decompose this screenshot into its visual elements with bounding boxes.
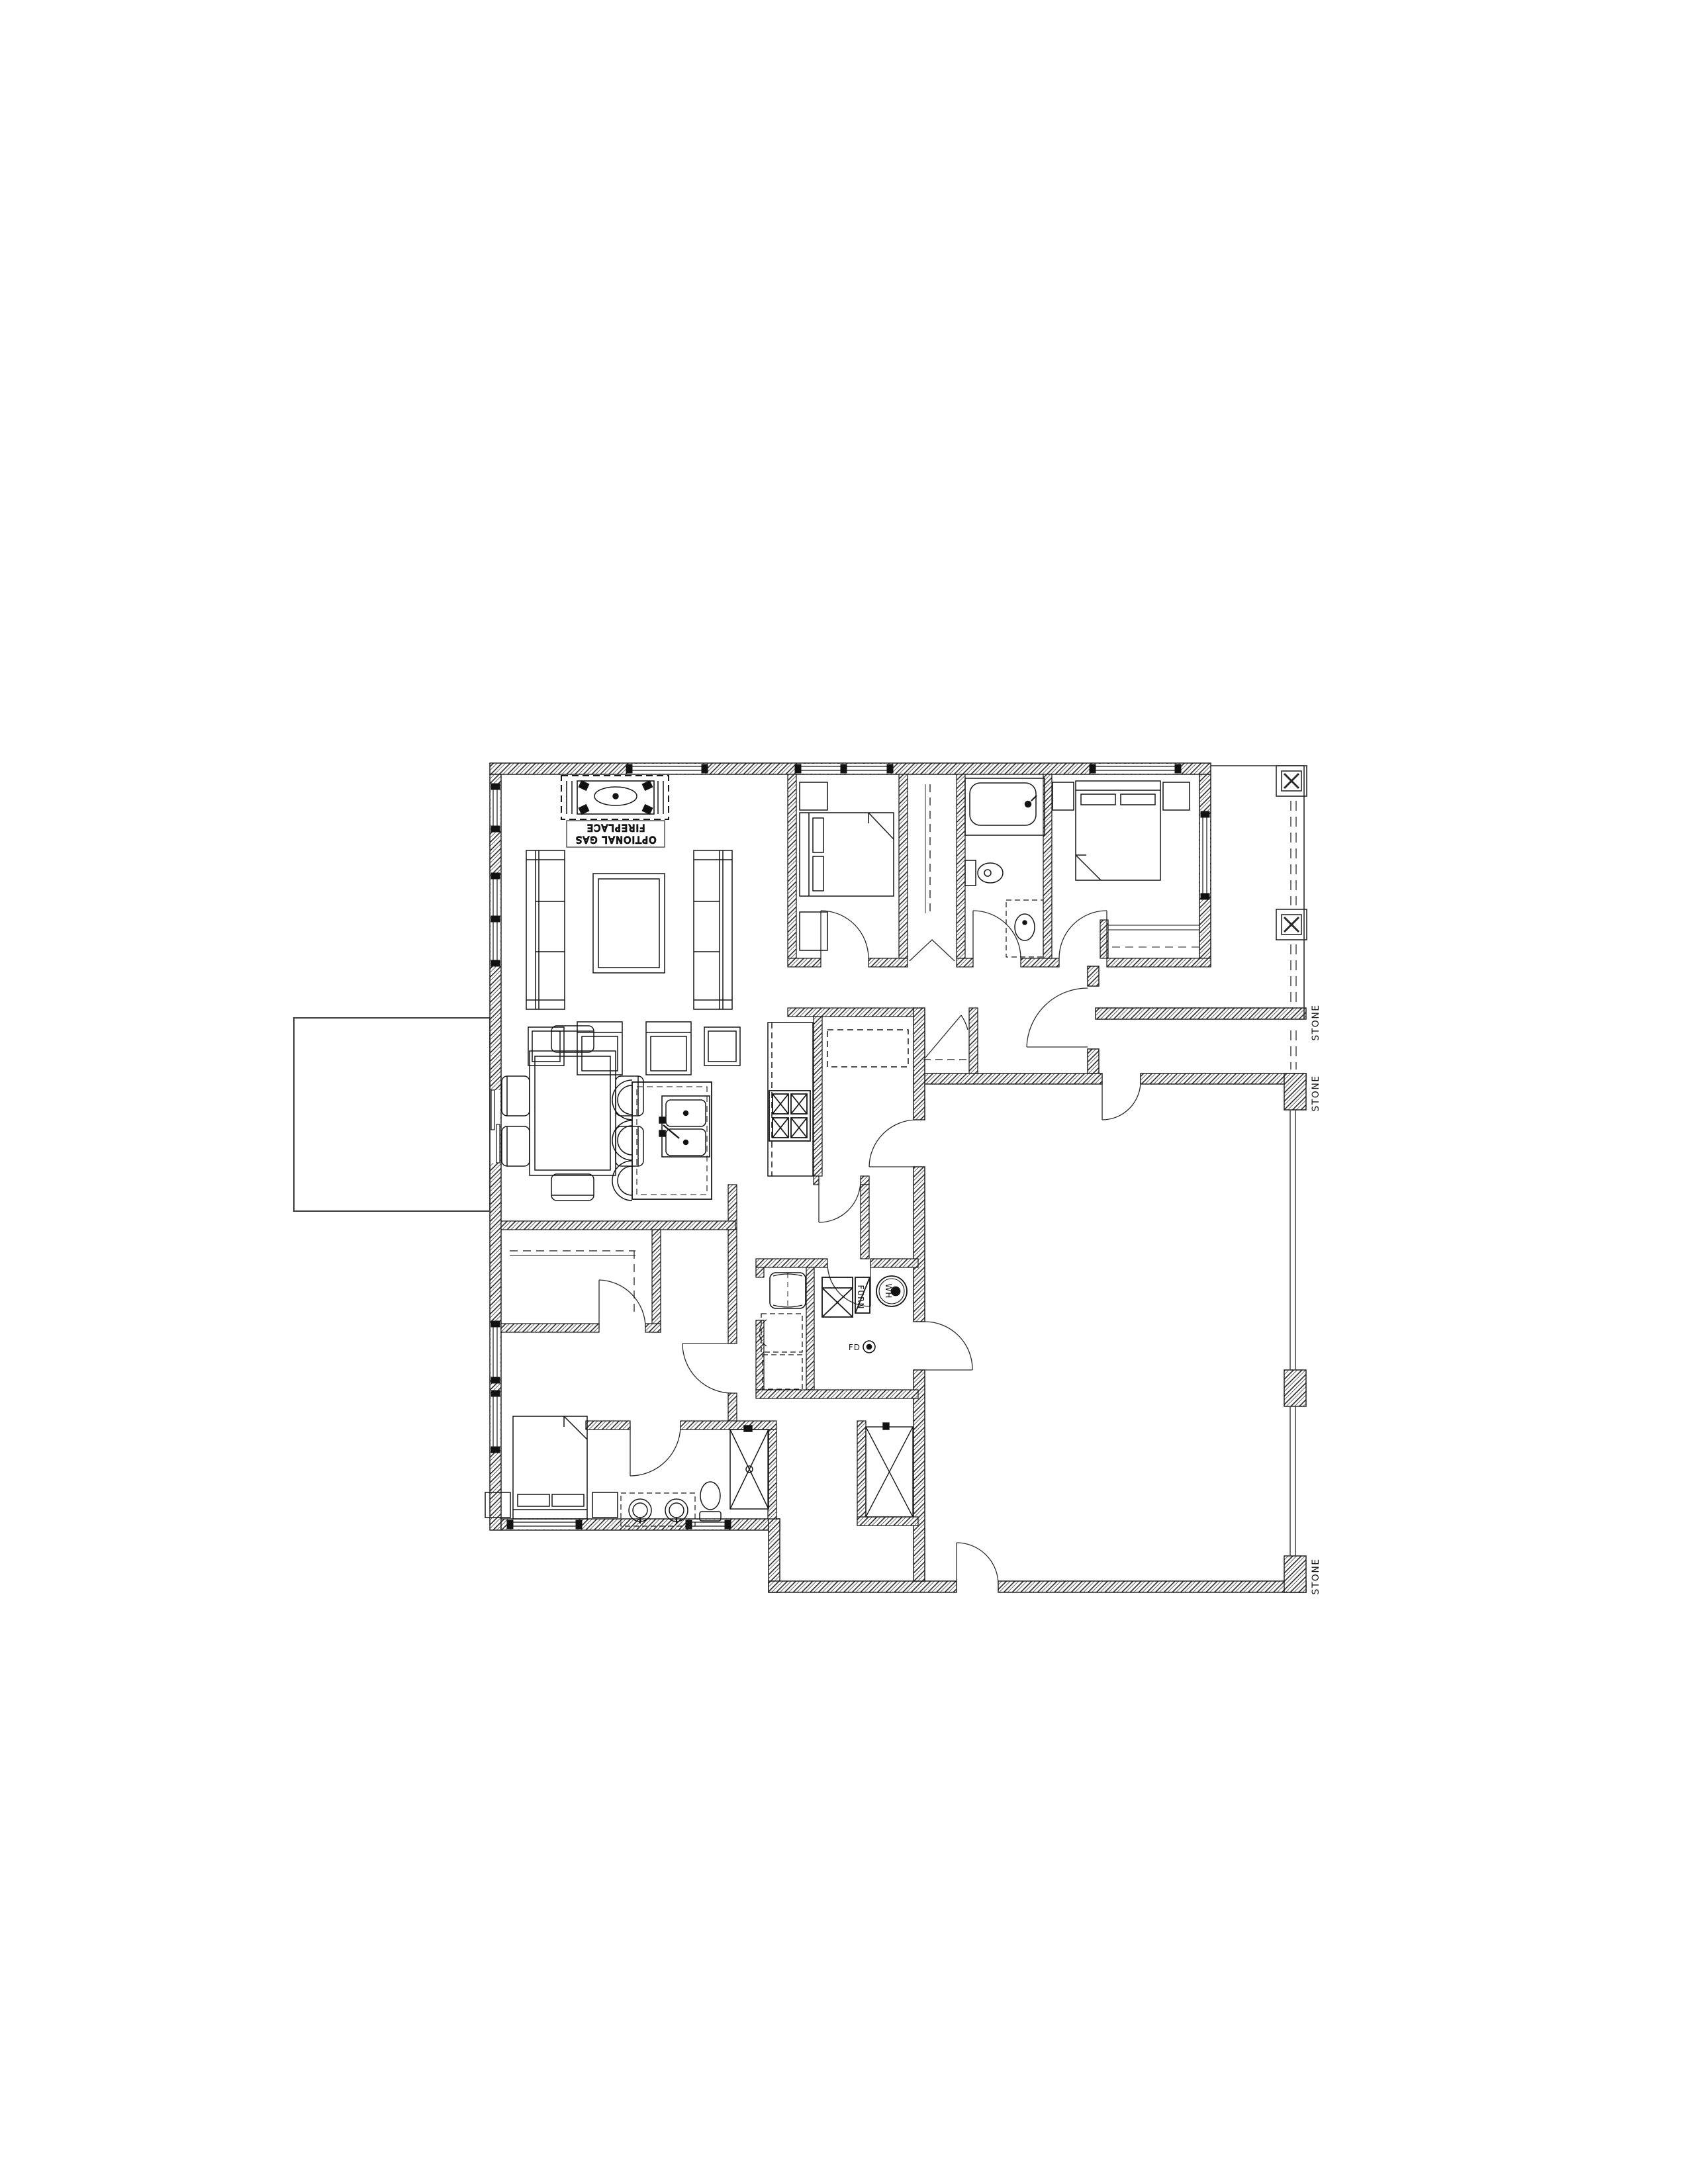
sliding-door (491, 1090, 500, 1163)
window (491, 784, 500, 832)
door-garage-entry (1102, 1081, 1141, 1120)
range-icon (769, 1091, 810, 1141)
furnace-label: FURN (856, 1285, 865, 1310)
master-suite (485, 1251, 769, 1526)
window (491, 1321, 500, 1383)
laundry-room (759, 1273, 806, 1389)
door-bifold-closet2 (910, 940, 955, 961)
closet-shelf (1108, 925, 1199, 947)
bed-icon (1076, 781, 1160, 880)
kitchen-island-icon (612, 1080, 712, 1201)
nightstand-icon (800, 782, 827, 810)
window (491, 873, 500, 966)
stone-label: STONE (1311, 1558, 1321, 1594)
dining-chair-icon (551, 1026, 594, 1052)
door-front (1027, 988, 1088, 1047)
bed-icon (513, 1416, 587, 1519)
window (795, 764, 893, 774)
fireplace-label-line2: FIREPLACE (586, 822, 645, 833)
window (626, 764, 708, 774)
sofa-icon (694, 850, 732, 1009)
walk-in-closet (510, 1251, 635, 1314)
porch (1211, 766, 1307, 1069)
door-master (682, 1343, 732, 1393)
bed-icon (800, 813, 894, 896)
roofline-dashed (1291, 801, 1296, 1069)
fireplace-label-line1: OPTIONAL GAS (575, 834, 657, 844)
stone-label: STONE (1311, 1075, 1321, 1111)
door-garage-service (957, 1543, 998, 1584)
stair-box (866, 1423, 913, 1517)
kitchen (612, 1023, 908, 1201)
dining-chair-icon (551, 1174, 594, 1201)
floor-drain-icon (863, 1341, 875, 1353)
pantry-shelves (827, 1030, 908, 1067)
ottoman-icon (704, 1027, 740, 1066)
floor-plan-sheet: OPTIONAL GAS FIREPLACE (0, 0, 1688, 2184)
door-bath2 (973, 911, 1021, 958)
toilet-icon (965, 860, 1003, 886)
bedroom2 (800, 782, 894, 950)
dryer-icon (759, 1314, 802, 1389)
garage-door (1290, 1110, 1295, 1556)
window (507, 1520, 582, 1529)
bathroom2 (965, 778, 1045, 957)
closet2 (925, 784, 930, 913)
door-coat-closet (925, 1015, 968, 1058)
door-bed3 (1059, 911, 1107, 958)
floor-drain-label: FD (849, 1343, 861, 1352)
armchair-icon (646, 1022, 691, 1075)
patio-outline (294, 1018, 490, 1211)
master-bath (621, 1426, 769, 1526)
window (1090, 764, 1181, 774)
water-heater-label: WH (884, 1284, 893, 1299)
washer-icon (770, 1273, 806, 1308)
stone-label: STONE (1311, 1004, 1321, 1040)
dining-chair-icon (502, 1126, 530, 1166)
nightstand-icon (592, 1492, 618, 1518)
furnace-icon (822, 1277, 853, 1317)
nightstand-icon (1163, 782, 1190, 810)
dresser-icon (800, 912, 827, 950)
coffee-table-icon (593, 874, 665, 973)
ottoman-icon (528, 1027, 564, 1066)
door-corridor (869, 1120, 917, 1167)
interior-walls (501, 774, 1211, 1525)
living-room: OPTIONAL GAS FIREPLACE (526, 776, 740, 1075)
dining-table-icon (530, 1051, 616, 1175)
nightstand-icon (1053, 782, 1074, 810)
door-bed2 (821, 911, 868, 958)
porch-column-icon (1276, 766, 1307, 796)
door-utility-garage (925, 1322, 972, 1370)
porch-column-icon (1276, 909, 1307, 940)
door-master-bath (630, 1426, 680, 1476)
dining-chair-icon (502, 1076, 530, 1116)
kitchen-sink-icon (659, 1096, 710, 1157)
bathtub-icon (965, 778, 1045, 835)
toilet-icon (700, 1482, 721, 1521)
door-back-hall (819, 1181, 861, 1222)
fireplace-icon (561, 776, 669, 819)
sofa-icon (526, 850, 565, 1009)
window (491, 1390, 500, 1453)
fireplace-label: OPTIONAL GAS FIREPLACE (567, 821, 665, 847)
bedroom3 (1053, 781, 1199, 947)
door-wic (599, 1280, 645, 1328)
vanity-sink-icon (1006, 900, 1043, 957)
window (1200, 811, 1210, 899)
shower-icon (730, 1426, 769, 1509)
